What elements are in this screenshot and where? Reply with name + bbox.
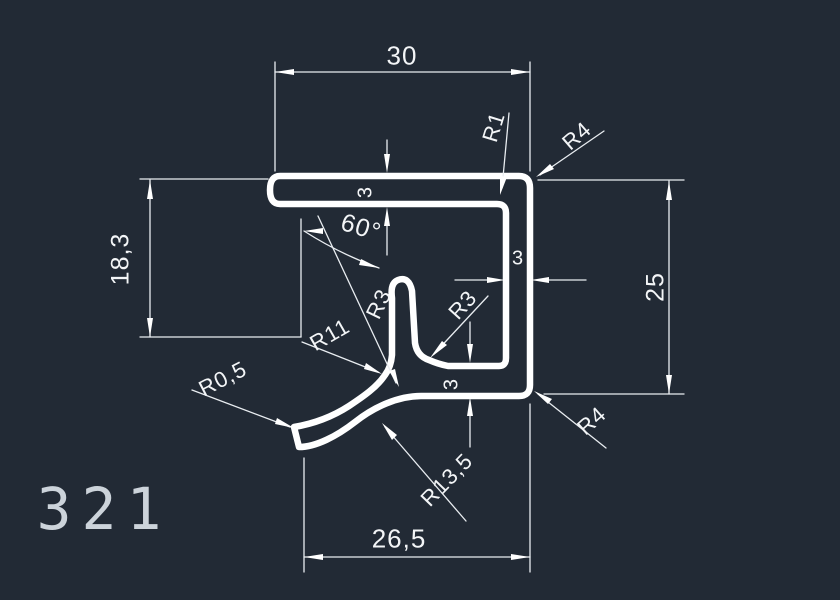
arrowhead-3-flange-up [384, 207, 390, 226]
dim-label-wall-thickness: 3 [512, 248, 524, 271]
dim-label-bottom-width: 26,5 [372, 524, 427, 555]
arrowhead-265-right [511, 554, 530, 560]
arrowhead-3-wall-right [531, 277, 549, 283]
arrowhead-25-top [666, 181, 672, 200]
arrowhead-265-left [304, 554, 323, 560]
arrowhead-3-bot-dn [467, 344, 473, 363]
arrowhead-r11 [364, 363, 382, 374]
part-number: 321 [37, 475, 172, 543]
arrowhead-r05 [275, 418, 294, 428]
dim-label-left-height: 18,3 [107, 233, 136, 286]
arrowhead-183-bottom [147, 318, 153, 337]
arrowhead-r3-right [430, 341, 447, 358]
arrowhead-r4-bottom [534, 391, 552, 404]
profile-outline [270, 176, 530, 447]
arrowhead-r4-top [536, 164, 554, 177]
dim-label-bottom-thickness: 3 [441, 378, 464, 390]
dim-label-right-height: 25 [642, 272, 671, 302]
arrowhead-25-bottom [666, 375, 672, 394]
arrowhead-3-flange-dn [384, 154, 390, 173]
cad-canvas[interactable]: 30 3 60° R1 R4 18,3 3 25 R3 R3 R11 R0,5 … [0, 0, 840, 600]
arrowhead-3-wall-left [487, 277, 505, 283]
arrowhead-3-bot-up [467, 397, 473, 416]
arrowhead-30-right [511, 69, 530, 75]
arrowhead-angle-right [359, 259, 379, 268]
arrowhead-183-top [147, 180, 153, 199]
arrowhead-r1 [500, 176, 507, 195]
arrowhead-30-left [275, 69, 294, 75]
dim-label-flange-thickness: 3 [355, 186, 378, 198]
dim-label-top-width: 30 [387, 41, 418, 72]
arrowhead-r3-left [389, 369, 399, 387]
